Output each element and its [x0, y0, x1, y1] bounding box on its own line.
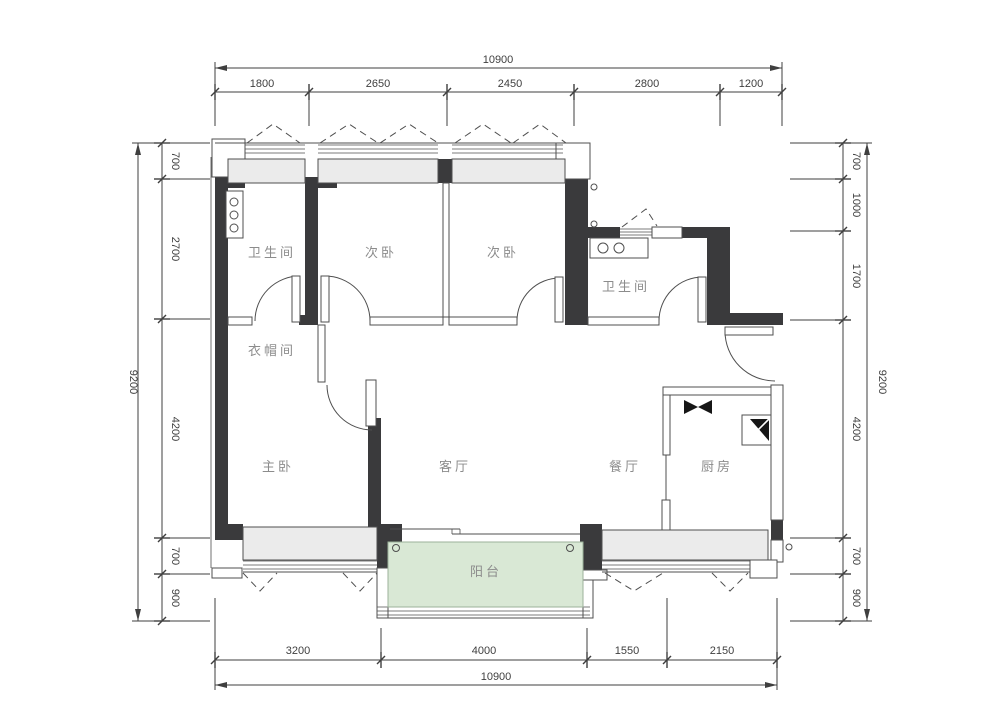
dim-top-seg1: 1800 — [250, 78, 274, 90]
pipe-circle — [591, 221, 597, 227]
floor-plan-page: 卫生间 次卧 次卧 卫生间 衣帽间 主卧 客厅 餐厅 厨房 阳台 10900 1… — [0, 0, 1000, 720]
dim-left-seg1: 700 — [169, 152, 181, 170]
structural-walls — [215, 159, 783, 570]
room-label-bed1: 次卧 — [365, 245, 397, 260]
dim-left-seg4: 700 — [169, 547, 181, 565]
dim-left-seg5: 900 — [169, 589, 181, 607]
bed2-door-arc — [517, 278, 560, 321]
master-door-leaf — [366, 380, 376, 426]
pipe-circle — [591, 184, 597, 190]
dim-top-total: 10900 — [483, 54, 514, 66]
floor-plan-drawing: 卫生间 次卧 次卧 卫生间 衣帽间 主卧 客厅 餐厅 厨房 阳台 10900 1… — [0, 0, 1000, 720]
room-label-living: 客厅 — [439, 459, 471, 474]
bed1-door-leaf — [321, 276, 329, 322]
bath1-cabinet-fixture — [226, 191, 243, 238]
bath2-door-arc — [659, 277, 703, 321]
dim-right-seg5: 700 — [850, 547, 862, 565]
kitchen-flue — [742, 415, 771, 445]
room-label-master: 主卧 — [262, 459, 294, 474]
bed1-door-arc — [325, 276, 370, 321]
door-stop-circle — [786, 544, 792, 550]
room-label-bed2: 次卧 — [487, 245, 519, 260]
room-label-dining: 餐厅 — [609, 459, 641, 474]
dim-top-seg3: 2450 — [498, 78, 522, 90]
dim-right-seg4: 4200 — [850, 417, 862, 441]
dimension-chain-left: 9200 700 2700 4200 700 900 — [127, 139, 210, 625]
dim-right-seg2: 1000 — [850, 193, 862, 217]
doors — [255, 276, 775, 534]
room-label-cloak: 衣帽间 — [248, 343, 296, 358]
dimension-chain-right: 700 1000 1700 4200 700 900 9200 — [790, 139, 888, 625]
dim-top-seg4: 2800 — [635, 78, 659, 90]
room-label-kitchen: 厨房 — [701, 459, 733, 474]
dim-left-total: 9200 — [127, 370, 139, 394]
dim-bottom-total: 10900 — [481, 671, 512, 683]
dim-right-total: 9200 — [876, 370, 888, 394]
dim-left-seg2: 2700 — [169, 237, 181, 261]
bath2-sink-counter — [590, 238, 648, 258]
dim-bottom-seg1: 3200 — [286, 645, 310, 657]
dim-right-seg3: 1700 — [850, 264, 862, 288]
bed2-door-leaf — [555, 277, 563, 322]
dimension-chain-top: 10900 1800 2650 2450 2800 1200 — [211, 54, 786, 126]
entry-door-arc — [725, 331, 775, 381]
master-door-arc — [327, 385, 372, 430]
dim-bottom-seg4: 2150 — [710, 645, 734, 657]
room-label-balcony: 阳台 — [470, 564, 502, 579]
bath2-door-leaf — [698, 277, 706, 322]
room-label-bath1: 卫生间 — [248, 245, 296, 260]
dim-left-seg3: 4200 — [169, 417, 181, 441]
dim-top-seg2: 2650 — [366, 78, 390, 90]
room-label-bath2: 卫生间 — [602, 279, 650, 294]
dim-bottom-seg3: 1550 — [615, 645, 639, 657]
dimension-chain-bottom: 3200 4000 1550 2150 10900 — [211, 598, 781, 690]
dim-bottom-seg2: 4000 — [472, 645, 496, 657]
dim-top-seg5: 1200 — [739, 78, 763, 90]
dim-right-seg1: 700 — [850, 152, 862, 170]
entry-door-leaf — [725, 327, 773, 335]
bath1-door-leaf — [292, 276, 300, 322]
dim-right-seg6: 900 — [850, 589, 862, 607]
gas-valve-symbol — [684, 400, 712, 414]
